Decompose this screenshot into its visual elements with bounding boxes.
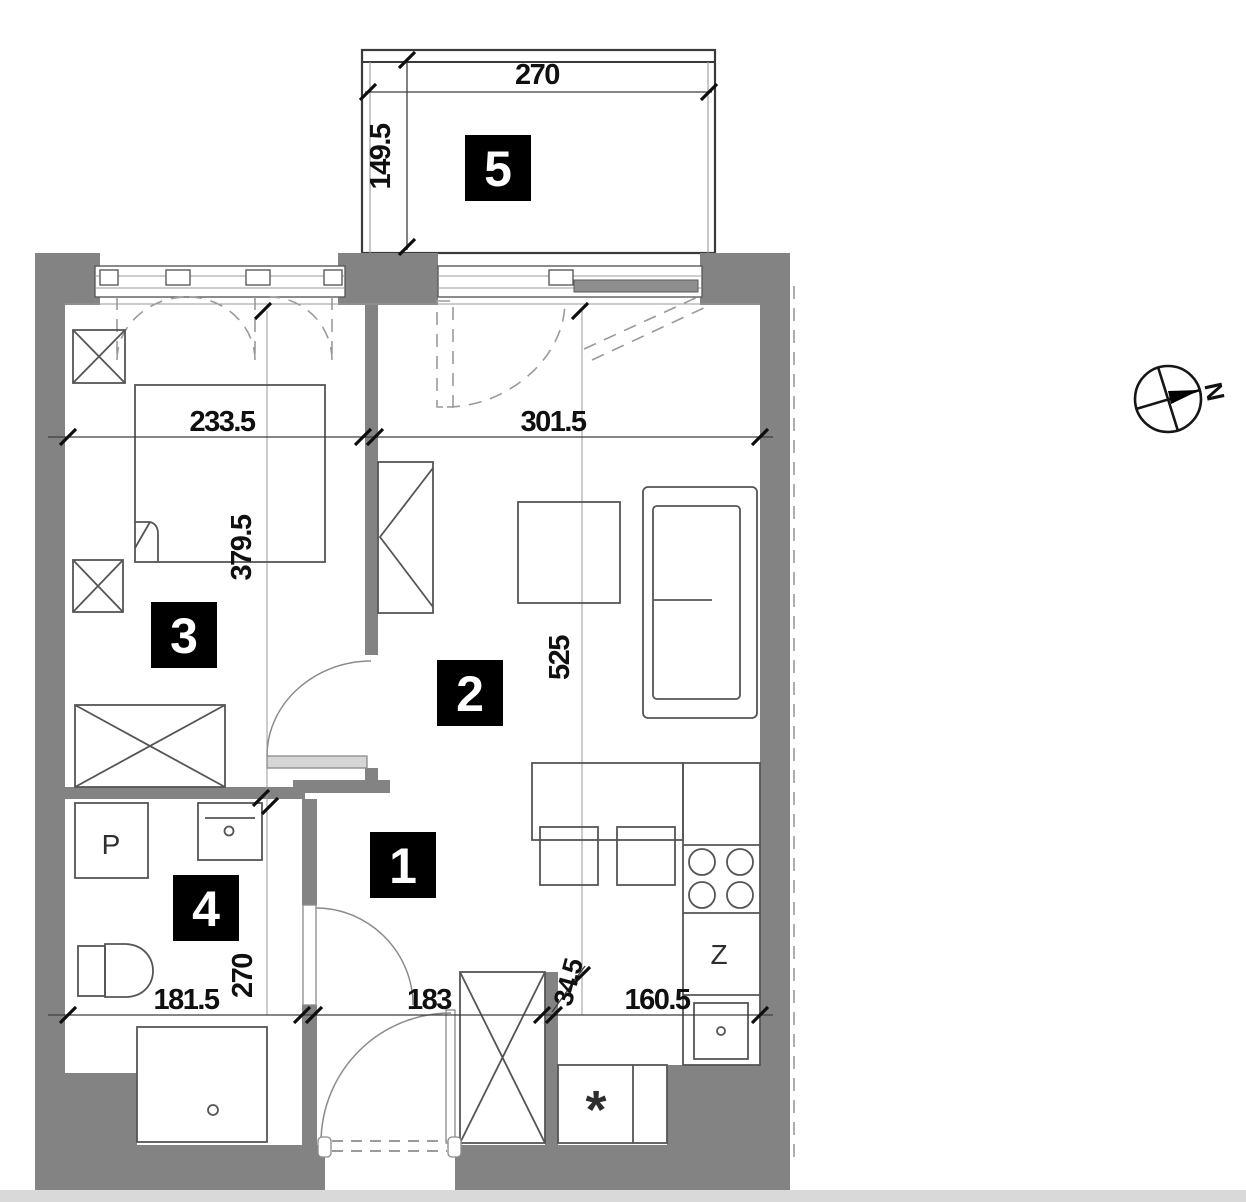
kitchen-cabinet-label: Z	[710, 939, 727, 970]
dim-bedroom-width: 233.5	[189, 406, 255, 438]
floor-plan-page: Z * P	[0, 0, 1246, 1202]
living-window	[438, 266, 702, 297]
room-label-3: 3	[151, 602, 217, 668]
dim-bath-width: 181.5	[153, 984, 219, 1016]
room-label-1: 1	[370, 832, 436, 898]
floor-plan-canvas: Z * P	[0, 0, 1246, 1202]
fridge-label: *	[585, 1080, 606, 1140]
svg-text:3: 3	[170, 608, 198, 664]
bathroom-top-wall	[65, 787, 305, 799]
dim-bedroom-depth: 379.5	[226, 514, 258, 580]
dim-living-depth: 525	[544, 635, 576, 680]
bedroom-living-wall	[365, 305, 378, 655]
dim-bath-depth: 270	[227, 954, 259, 998]
dim-living-width: 301.5	[520, 406, 586, 438]
bathroom-side-wall	[302, 799, 317, 905]
dim-balcony-depth: 149.5	[365, 123, 397, 189]
fixed-glazing	[574, 280, 698, 292]
svg-text:5: 5	[484, 141, 512, 197]
bottom-strip	[0, 1190, 1246, 1202]
svg-text:1: 1	[389, 838, 417, 894]
room-label-2: 2	[437, 660, 503, 726]
dim-hall-width: 183	[407, 984, 452, 1016]
svg-text:4: 4	[192, 881, 220, 937]
svg-text:2: 2	[456, 666, 484, 722]
bedroom-window	[95, 266, 345, 297]
room-label-5: 5	[465, 135, 531, 201]
washing-machine-label: P	[102, 829, 121, 860]
dim-kitchen-width: 160.5	[624, 984, 690, 1016]
dim-balcony-width: 270	[515, 59, 559, 91]
room-label-4: 4	[173, 875, 239, 941]
